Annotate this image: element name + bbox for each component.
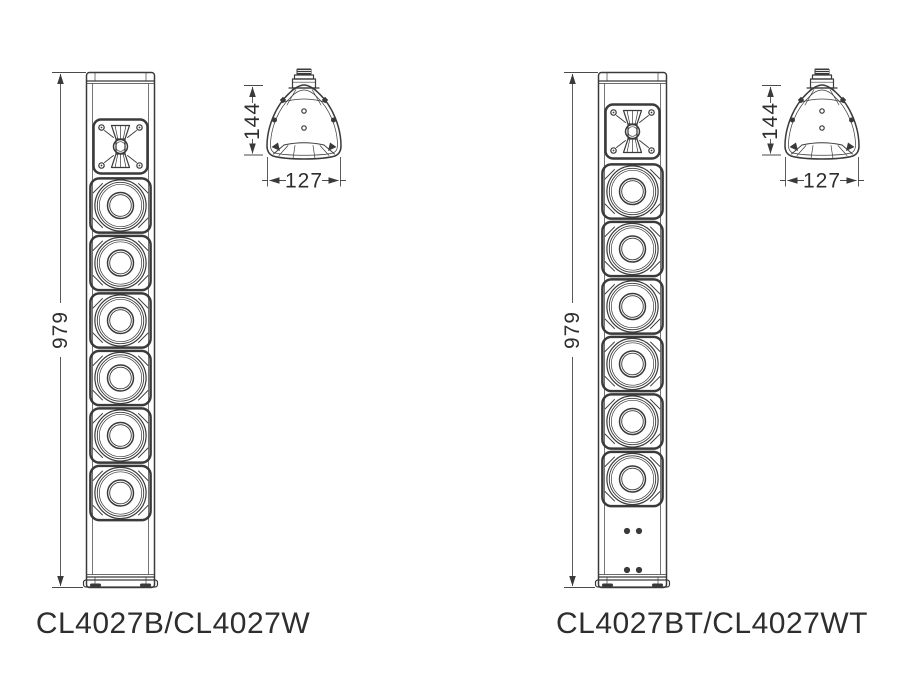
height-dimension-label-left: 979 bbox=[49, 311, 72, 349]
width-dimension-label-right: 127 bbox=[803, 170, 841, 193]
bottom-screws bbox=[624, 528, 642, 573]
woofer-driver bbox=[602, 222, 662, 276]
woofer-driver bbox=[90, 178, 150, 232]
tweeter-driver bbox=[606, 105, 660, 159]
woofer-driver bbox=[90, 293, 150, 347]
woofer-driver bbox=[602, 452, 662, 506]
depth-dimension-label-left: 144 bbox=[241, 102, 264, 140]
width-dimension-right: 127 bbox=[780, 157, 864, 193]
woofer-driver bbox=[90, 236, 150, 290]
top-view-right: 144 127 bbox=[759, 69, 864, 193]
height-dimension-left: 979 bbox=[49, 73, 86, 588]
height-dimension-label-right: 979 bbox=[561, 311, 584, 349]
tweeter-driver bbox=[94, 120, 148, 174]
front-view-right bbox=[596, 73, 670, 588]
top-view-left: 144 127 bbox=[241, 69, 346, 193]
model-label-left: CL4027B/CL4027W bbox=[36, 607, 311, 640]
width-dimension-label-left: 127 bbox=[285, 170, 323, 193]
depth-dimension-left: 144 bbox=[241, 86, 264, 156]
woofer-driver bbox=[90, 466, 150, 520]
model-label-right: CL4027BT/CL4027WT bbox=[556, 607, 868, 640]
woofer-driver bbox=[602, 279, 662, 333]
depth-dimension-right: 144 bbox=[759, 86, 782, 156]
front-view-left bbox=[84, 73, 158, 588]
woofer-driver bbox=[90, 408, 150, 462]
diagram-page: 979 144 127 bbox=[0, 0, 900, 684]
depth-dimension-label-right: 144 bbox=[759, 102, 782, 140]
woofer-driver bbox=[602, 164, 662, 218]
woofer-driver bbox=[90, 351, 150, 405]
top-view-shell bbox=[785, 69, 859, 160]
width-dimension-left: 127 bbox=[262, 157, 346, 193]
technical-diagram: 979 144 127 bbox=[0, 0, 900, 684]
woofer-driver bbox=[602, 337, 662, 391]
height-dimension-right: 979 bbox=[561, 73, 598, 588]
top-view-shell bbox=[267, 69, 341, 160]
woofer-driver bbox=[602, 394, 662, 448]
